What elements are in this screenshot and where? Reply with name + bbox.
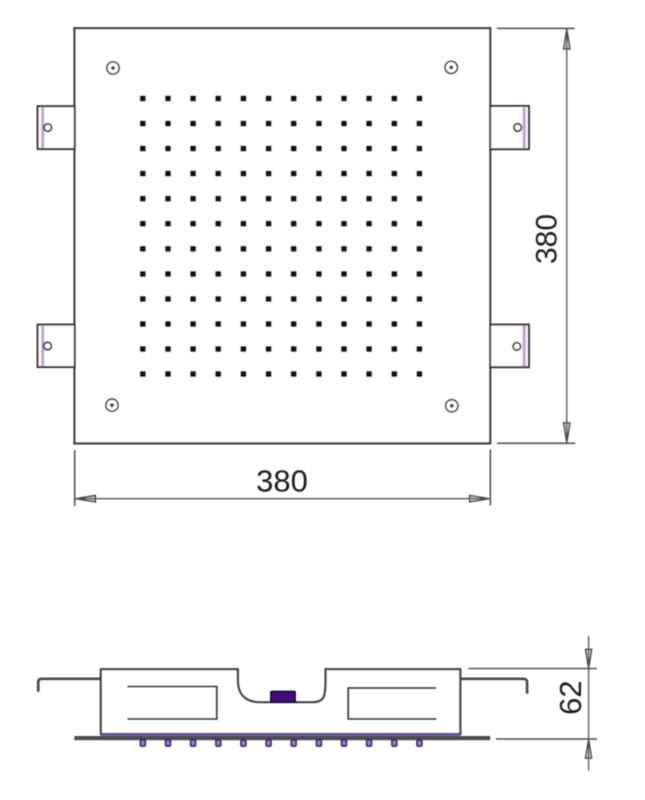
- svg-text:380: 380: [256, 464, 308, 499]
- svg-text:62: 62: [553, 680, 588, 714]
- svg-text:380: 380: [530, 214, 563, 264]
